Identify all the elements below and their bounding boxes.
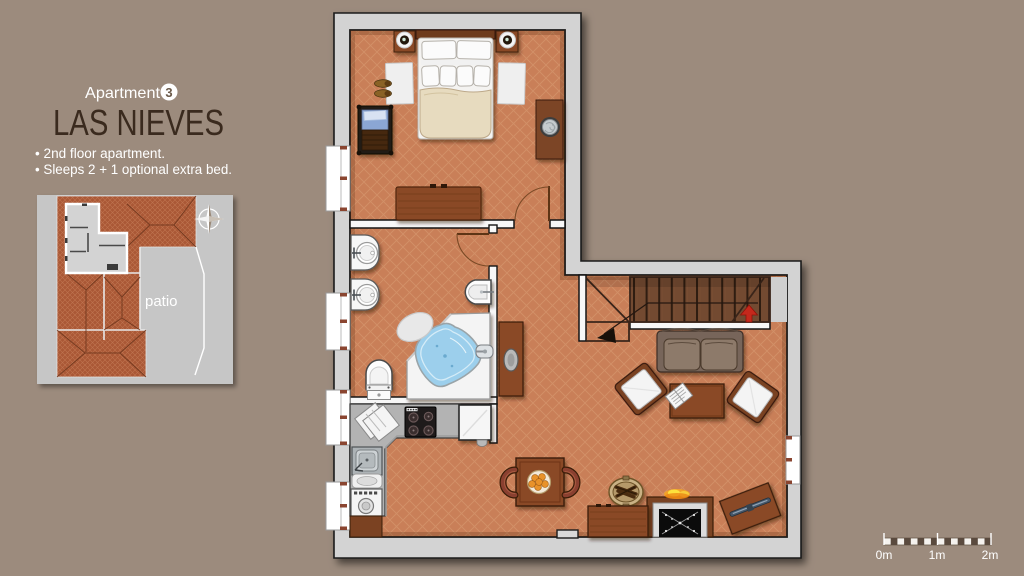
svg-text:patio: patio xyxy=(145,293,178,310)
svg-text:2m: 2m xyxy=(982,548,999,562)
svg-text:• 2nd floor apartment.: • 2nd floor apartment. xyxy=(35,146,165,161)
svg-text:LAS NIEVES: LAS NIEVES xyxy=(53,102,224,143)
svg-text:1m: 1m xyxy=(929,548,946,562)
svg-text:0m: 0m xyxy=(876,548,893,562)
svg-text:3: 3 xyxy=(165,85,172,100)
svg-text:• Sleeps 2 + 1 optional extra: • Sleeps 2 + 1 optional extra bed. xyxy=(35,162,232,177)
svg-text:Apartment: Apartment xyxy=(85,85,161,102)
